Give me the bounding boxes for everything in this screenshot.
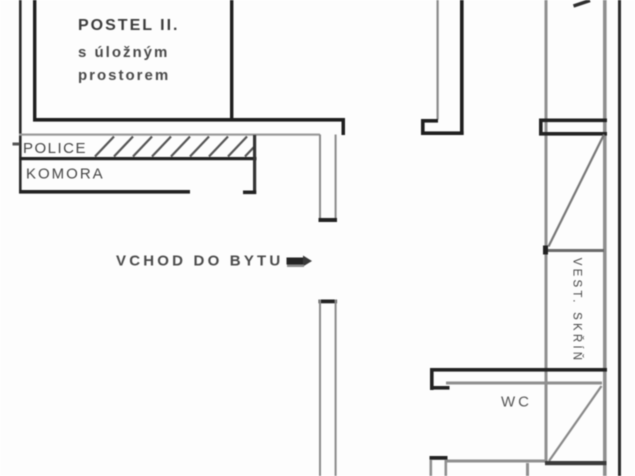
svg-text:POLICE: POLICE bbox=[23, 140, 87, 157]
svg-text:VEST. SKŘÍŇ: VEST. SKŘÍŇ bbox=[570, 258, 583, 364]
svg-text:prostorem: prostorem bbox=[78, 67, 170, 84]
svg-text:POSTEL II.: POSTEL II. bbox=[78, 17, 180, 34]
svg-text:WC: WC bbox=[501, 394, 532, 411]
svg-text:VCHOD DO BYTU: VCHOD DO BYTU bbox=[116, 253, 283, 270]
svg-text:KOMORA: KOMORA bbox=[26, 166, 105, 183]
svg-text:s úložným: s úložným bbox=[78, 44, 169, 61]
